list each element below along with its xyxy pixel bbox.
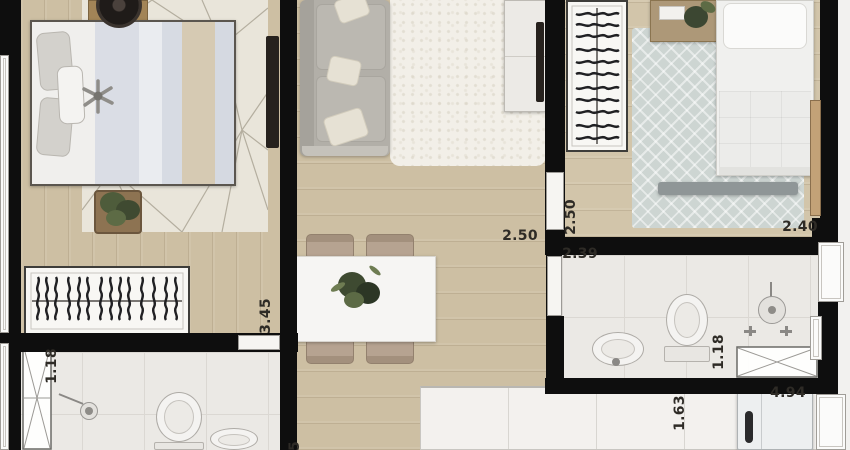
plant-leaves-icon	[106, 210, 126, 226]
toilet-tank-bathroom2	[664, 346, 710, 362]
book-stack	[659, 6, 685, 20]
dimension-label: 2.50	[563, 197, 579, 237]
toilet-bathroom1	[156, 392, 202, 442]
tv-panel-bedroom1	[266, 36, 279, 148]
dimension-label: 1.18	[711, 332, 727, 372]
window-right-bottom	[816, 394, 846, 450]
refrigerator-seam	[761, 393, 762, 449]
dimension-label: 4.94	[768, 385, 808, 401]
sofa-front-edge	[302, 146, 388, 156]
bed2-pillow	[723, 3, 807, 49]
toilet-tank-bathroom1	[154, 442, 204, 450]
toilet-bathroom2	[666, 294, 708, 346]
door-bathroom1	[238, 335, 280, 350]
foot-bench	[658, 182, 798, 195]
bed-bow-decor	[78, 76, 118, 116]
window-left-top	[0, 55, 9, 333]
dimension-label: 1.18	[44, 346, 60, 386]
tv-on-sideboard	[536, 22, 544, 102]
window-left-bottom	[0, 343, 9, 450]
vent-right	[810, 316, 822, 360]
dimension-label: 3.45	[258, 296, 274, 336]
outer-edge-right	[838, 0, 850, 450]
shower-valve	[785, 326, 788, 336]
wall-bath2-left	[546, 316, 564, 380]
wall-bedroom1-living	[280, 0, 297, 450]
dimension-label: 1.63	[672, 393, 688, 433]
wall-right-top	[820, 0, 838, 242]
door-bathroom2	[547, 256, 562, 316]
shower-head-bathroom2	[758, 296, 786, 324]
dimension-label: 2.40	[780, 219, 820, 235]
dimension-label-partial: 5	[287, 439, 303, 450]
shower-valve	[749, 326, 752, 336]
single-bed	[716, 0, 814, 176]
floor-plan: 2.50 2.50 2.40 2.39 3.45 1.18 1.18 1.63 …	[0, 0, 850, 450]
sofa-backrest	[300, 0, 314, 156]
dimension-label: 2.50	[500, 228, 540, 244]
centerpiece-plant	[344, 292, 364, 308]
sink-bathroom1	[210, 428, 258, 450]
refrigerator-handle	[745, 411, 753, 443]
wardrobe-bedroom1	[24, 266, 190, 336]
sink-faucet	[612, 358, 620, 366]
door-bedroom2	[546, 172, 564, 230]
bed2-foot-edge	[719, 167, 811, 175]
window-right-mid	[818, 242, 844, 302]
door-right-wall	[810, 100, 821, 216]
bed2-duvet	[719, 91, 811, 169]
shower-glass-bathroom2	[736, 346, 818, 378]
shower-head-bathroom1	[80, 402, 98, 420]
dimension-label: 2.39	[560, 246, 600, 262]
wardrobe-bedroom2	[566, 0, 628, 152]
